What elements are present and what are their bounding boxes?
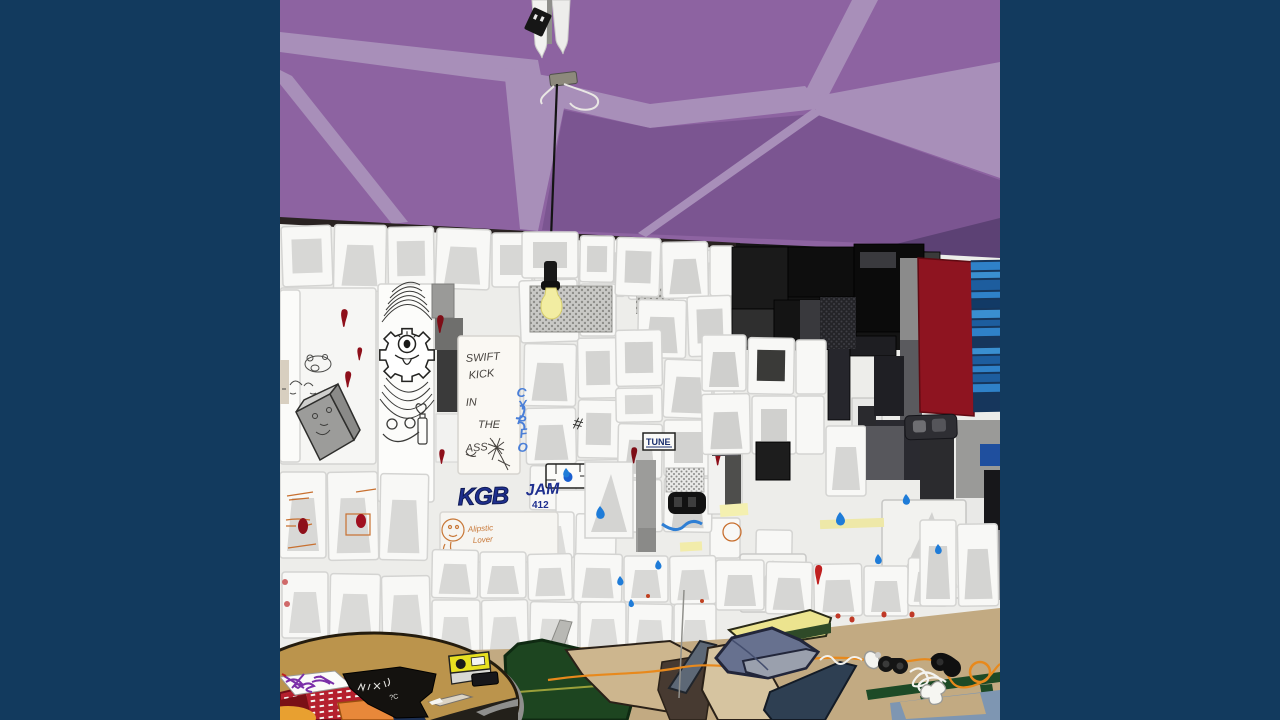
svg-text:O: O xyxy=(517,439,529,455)
svg-text:412: 412 xyxy=(532,500,549,511)
svg-text:SWIFT: SWIFT xyxy=(465,351,501,365)
svg-text:ASS: ASS xyxy=(464,441,489,455)
svg-text:IN: IN xyxy=(466,396,478,409)
svg-text:Alipstic: Alipstic xyxy=(467,523,494,534)
svg-text:TUNE: TUNE xyxy=(646,437,671,447)
svg-text:JAM: JAM xyxy=(525,481,560,500)
svg-text:THE: THE xyxy=(478,419,501,431)
svg-text:KGB: KGB xyxy=(457,482,509,511)
svg-text:Lover: Lover xyxy=(473,535,494,545)
